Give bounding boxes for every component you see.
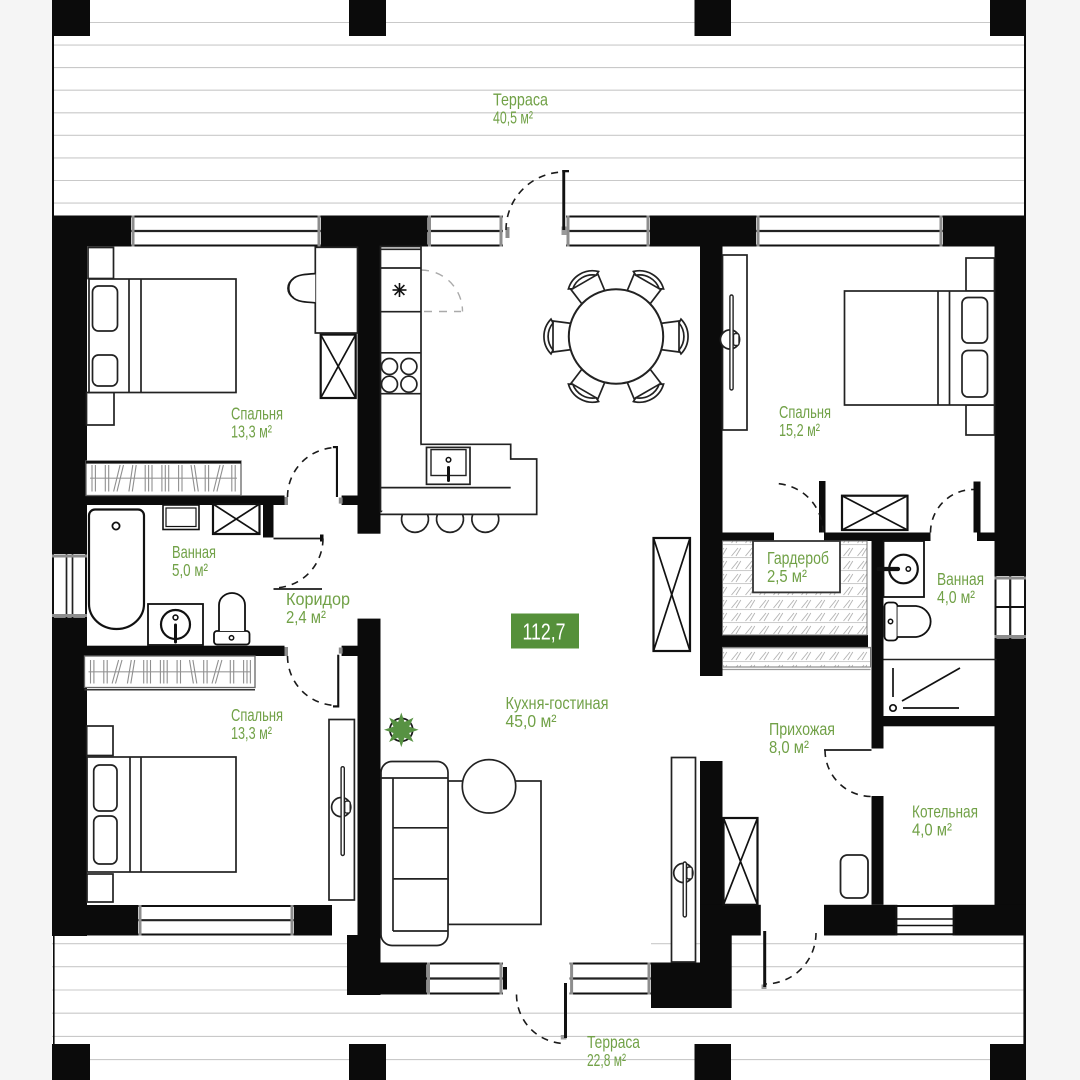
svg-text:13,3 м²: 13,3 м²	[231, 723, 272, 743]
svg-text:Прихожая: Прихожая	[769, 719, 835, 739]
svg-text:Спальня: Спальня	[779, 402, 831, 422]
svg-text:Ванная: Ванная	[172, 542, 216, 562]
svg-text:Терраса: Терраса	[493, 90, 548, 110]
svg-text:22,8 м²: 22,8 м²	[587, 1050, 626, 1070]
svg-text:Спальня: Спальня	[231, 404, 283, 424]
svg-text:4,0 м²: 4,0 м²	[912, 820, 952, 840]
svg-text:112,7: 112,7	[523, 618, 566, 644]
svg-text:15,2 м²: 15,2 м²	[779, 420, 820, 440]
svg-text:Гардероб: Гардероб	[767, 548, 829, 568]
svg-text:Терраса: Терраса	[587, 1032, 640, 1052]
svg-text:Котельная: Котельная	[912, 802, 978, 822]
svg-text:13,3 м²: 13,3 м²	[231, 422, 272, 442]
svg-text:Ванная: Ванная	[937, 569, 984, 589]
svg-text:2,4 м²: 2,4 м²	[286, 607, 326, 627]
svg-text:Коридор: Коридор	[286, 589, 350, 609]
svg-text:Спальня: Спальня	[231, 705, 283, 725]
svg-text:40,5 м²: 40,5 м²	[493, 108, 533, 128]
svg-text:Кухня-гостиная: Кухня-гостиная	[506, 693, 609, 713]
svg-text:45,0 м²: 45,0 м²	[506, 711, 557, 731]
svg-text:5,0 м²: 5,0 м²	[172, 560, 208, 580]
svg-text:2,5 м²: 2,5 м²	[767, 566, 807, 586]
svg-text:4,0 м²: 4,0 м²	[937, 587, 975, 607]
svg-text:8,0 м²: 8,0 м²	[769, 737, 809, 757]
